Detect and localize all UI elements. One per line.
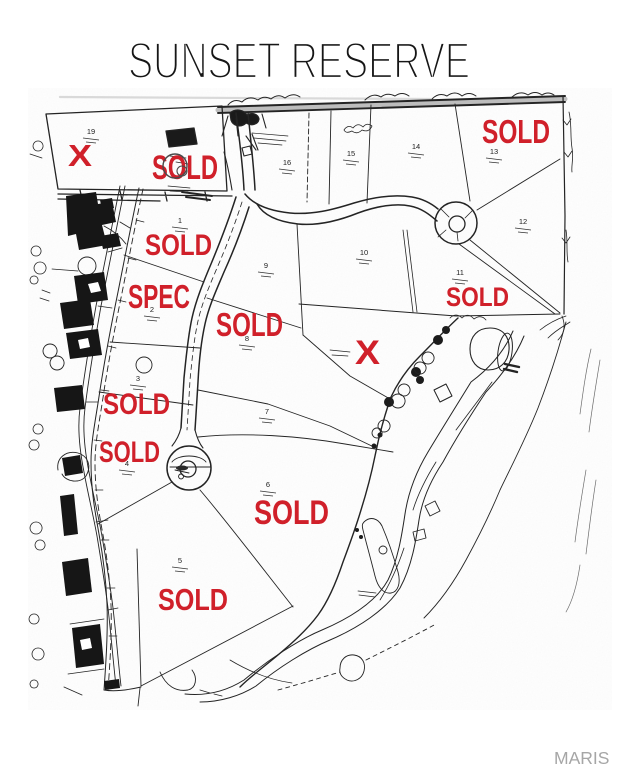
svg-text:X: X bbox=[355, 334, 380, 372]
svg-text:SOLD: SOLD bbox=[145, 229, 212, 262]
svg-text:MARIS: MARIS bbox=[554, 748, 609, 768]
svg-text:SPEC: SPEC bbox=[128, 278, 190, 315]
svg-text:SOLD: SOLD bbox=[446, 282, 509, 312]
svg-text:6: 6 bbox=[266, 480, 270, 489]
svg-text:5: 5 bbox=[178, 556, 182, 565]
svg-text:SOLD: SOLD bbox=[103, 388, 170, 421]
svg-text:SUNSET RESERVE: SUNSET RESERVE bbox=[128, 32, 470, 89]
svg-text:SOLD: SOLD bbox=[99, 436, 160, 469]
svg-text:19: 19 bbox=[87, 127, 95, 136]
svg-text:14: 14 bbox=[412, 142, 420, 151]
svg-text:X: X bbox=[68, 138, 92, 173]
svg-text:10: 10 bbox=[360, 248, 368, 257]
svg-text:SOLD: SOLD bbox=[482, 113, 550, 150]
svg-text:11: 11 bbox=[456, 268, 464, 277]
svg-text:SOLD: SOLD bbox=[158, 582, 228, 617]
svg-text:7: 7 bbox=[265, 407, 269, 416]
svg-text:SOLD: SOLD bbox=[152, 149, 218, 187]
svg-text:SOLD: SOLD bbox=[254, 494, 329, 532]
svg-text:9: 9 bbox=[264, 261, 268, 270]
svg-text:15: 15 bbox=[347, 149, 355, 158]
svg-text:16: 16 bbox=[283, 158, 291, 167]
svg-text:1: 1 bbox=[178, 216, 182, 225]
svg-text:12: 12 bbox=[519, 217, 527, 226]
svg-text:3: 3 bbox=[136, 374, 140, 383]
svg-text:SOLD: SOLD bbox=[216, 306, 283, 343]
